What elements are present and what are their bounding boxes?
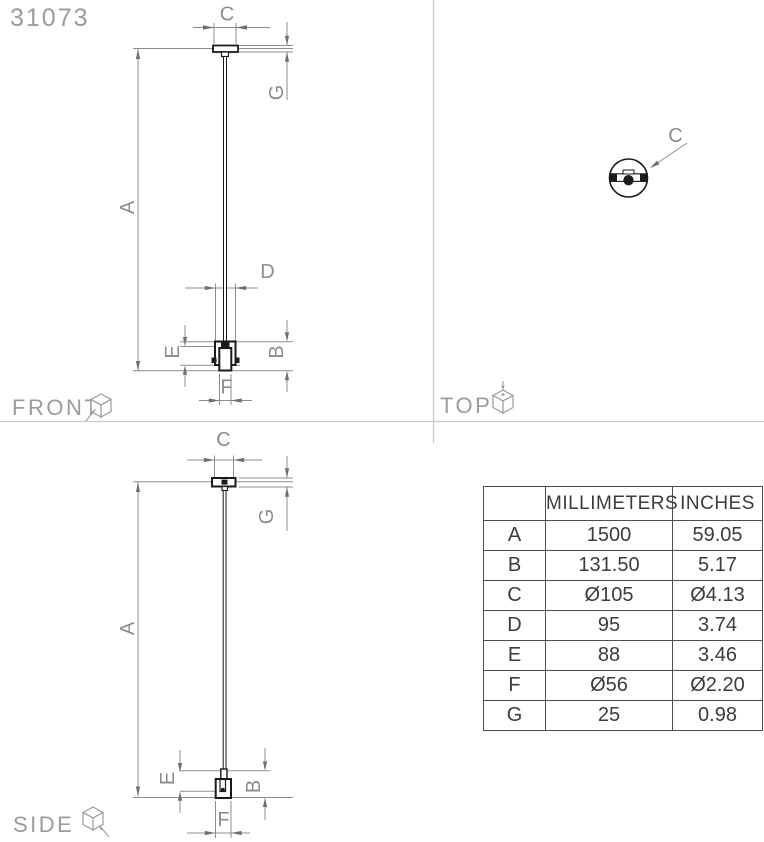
dim-key: A (484, 521, 546, 551)
top-dim-c: C (650, 125, 687, 168)
front-dim-d: D (185, 261, 276, 341)
side-dim-label-g: G (256, 508, 278, 525)
side-cable-fitting (222, 487, 228, 491)
front-dim-f: F (199, 374, 252, 405)
side-canopy-screw (222, 480, 228, 485)
dim-key: D (484, 611, 546, 641)
front-view-cube-icon (85, 391, 115, 423)
dim-inches: Ø4.13 (673, 581, 763, 611)
side-view: C G A (117, 429, 293, 838)
front-canopy (213, 46, 238, 53)
side-dim-a: A (117, 482, 293, 798)
dim-inches: 3.74 (673, 611, 763, 641)
front-view: C G A (117, 4, 293, 406)
header-key (484, 487, 546, 521)
top-dim-label-c: C (668, 125, 683, 147)
front-cable (224, 57, 227, 342)
front-dim-label-g: G (266, 84, 288, 101)
side-dim-label-a: A (117, 621, 139, 635)
dim-mm: 25 (546, 701, 673, 731)
front-dim-label-d: D (260, 261, 275, 283)
side-dim-b: B (243, 748, 267, 820)
top-view-label: TOP (440, 393, 492, 419)
header-millimeters: MILLIMETERS (546, 487, 673, 521)
top-cable-grip (623, 175, 633, 185)
header-inches: INCHES (673, 487, 763, 521)
table-header-row: MILLIMETERS INCHES (484, 487, 763, 521)
side-fixture-drawing (212, 478, 236, 798)
side-cable (223, 491, 226, 770)
dim-mm: 131.50 (546, 551, 673, 581)
front-cable-fitting (222, 52, 229, 57)
side-dim-label-f: F (217, 809, 230, 831)
front-dim-label-f: F (220, 377, 233, 399)
side-dim-label-b: B (243, 779, 265, 793)
side-socket-connector (221, 769, 227, 779)
front-socket-cylinder (219, 348, 231, 371)
front-dim-label-c: C (220, 4, 235, 26)
front-dim-label-b: B (266, 344, 288, 358)
front-socket-clip-right (235, 358, 240, 364)
front-dim-g: G (133, 22, 293, 100)
dim-mm: Ø56 (546, 671, 673, 701)
quadrant-dividers (0, 0, 764, 443)
side-dim-f: F (187, 801, 250, 838)
dimension-table: MILLIMETERS INCHES A 1500 59.05 B 131.50… (483, 486, 763, 731)
dim-inches: 59.05 (673, 521, 763, 551)
side-socket-pin (221, 788, 225, 792)
dim-key: E (484, 641, 546, 671)
table-row: G 25 0.98 (484, 701, 763, 731)
dim-inches: 3.46 (673, 641, 763, 671)
table-row: C Ø105 Ø4.13 (484, 581, 763, 611)
top-bar-end-left (611, 174, 618, 182)
front-dim-label-e: E (162, 344, 184, 358)
front-dim-c: C (193, 4, 270, 45)
dim-mm: 88 (546, 641, 673, 671)
front-dim-label-a: A (117, 200, 139, 214)
dim-inches: 0.98 (673, 701, 763, 731)
side-dim-label-e: E (157, 771, 179, 785)
dim-key: G (484, 701, 546, 731)
table-row: F Ø56 Ø2.20 (484, 671, 763, 701)
table-row: E 88 3.46 (484, 641, 763, 671)
table-row: A 1500 59.05 (484, 521, 763, 551)
side-dim-label-c: C (216, 429, 231, 451)
table-row: D 95 3.74 (484, 611, 763, 641)
top-view: C (610, 125, 688, 197)
dim-inches: Ø2.20 (673, 671, 763, 701)
dim-key: B (484, 551, 546, 581)
side-view-label: SIDE (13, 812, 74, 838)
top-view-cube-icon (489, 381, 517, 419)
dim-mm: 95 (546, 611, 673, 641)
side-dim-c: C (187, 429, 262, 477)
table-row: B 131.50 5.17 (484, 551, 763, 581)
technical-drawing-page: C G A (0, 0, 764, 842)
top-canopy-drawing (610, 159, 648, 197)
dim-key: F (484, 671, 546, 701)
front-socket-clip-left (212, 358, 217, 364)
top-bar-end-right (640, 174, 647, 182)
dim-inches: 5.17 (673, 551, 763, 581)
top-bracket-detail (623, 170, 634, 174)
side-view-cube-icon (79, 805, 111, 839)
dim-mm: 1500 (546, 521, 673, 551)
side-dim-g: G (133, 456, 293, 531)
product-number: 31073 (10, 4, 90, 33)
dim-mm: Ø105 (546, 581, 673, 611)
dim-key: C (484, 581, 546, 611)
